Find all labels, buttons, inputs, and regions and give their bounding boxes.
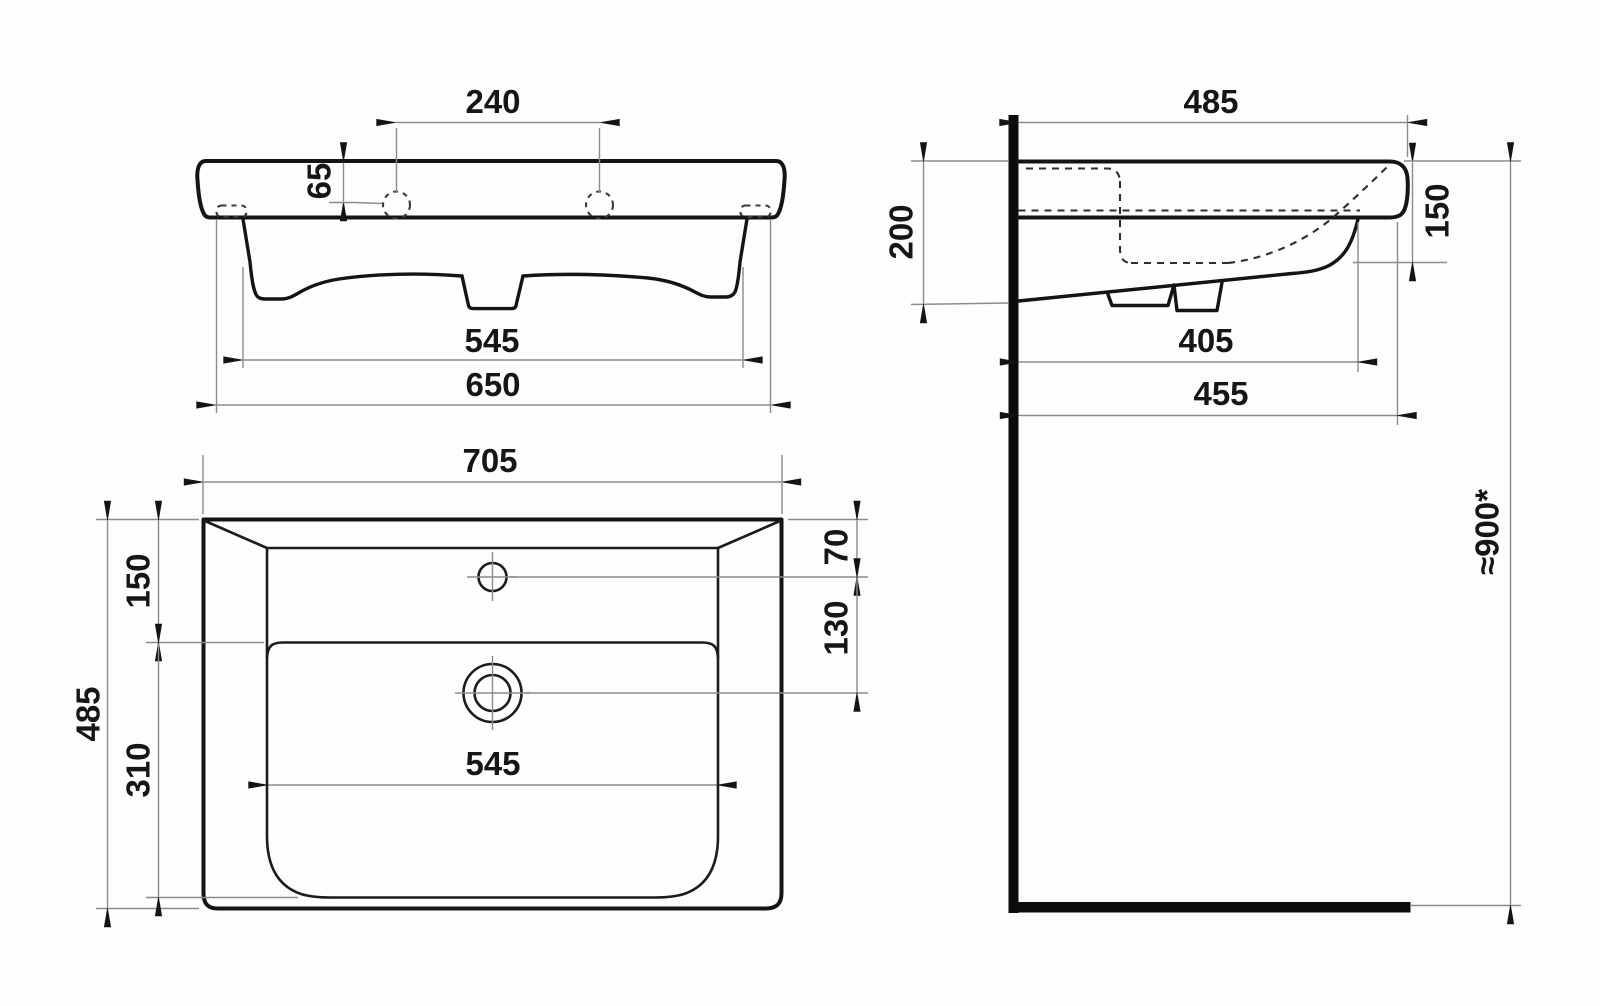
- dim-side-front-edge: 150: [1419, 183, 1456, 238]
- side-rim-profile: [1019, 162, 1408, 218]
- dim-front-fixing-spacing: 650: [465, 366, 520, 403]
- front-view: 240 65 545 650: [197, 83, 784, 413]
- side-bowl-hidden-front: [1228, 164, 1390, 263]
- dim-plan-depth: 485: [70, 686, 107, 741]
- side-bowl-hidden-back: [1120, 181, 1131, 263]
- front-tap-hole-right: [586, 192, 613, 219]
- dim-front-tap-drop: 65: [301, 163, 338, 200]
- side-view: 485 200 150 405 455 ≈900*: [883, 83, 1522, 913]
- dim-side-install-height: ≈900*: [1469, 489, 1506, 575]
- front-drain-spigot: [462, 276, 523, 309]
- dim-plan-tap-to-drain: 130: [818, 600, 855, 655]
- dim-plan-tap-from-back: 70: [818, 529, 855, 566]
- dim-plan-bowl-width: 545: [465, 745, 520, 782]
- dim-side-depth: 485: [1183, 83, 1238, 120]
- technical-drawing-page: 240 65 545 650: [0, 0, 1600, 1006]
- dim-side-wall-height: 200: [883, 204, 920, 259]
- front-tap-hole-left: [383, 192, 410, 219]
- floor-section: [1009, 902, 1411, 913]
- front-fixing-pad-left: [217, 206, 247, 218]
- technical-drawing-canvas: 240 65 545 650: [0, 0, 1600, 1006]
- plan-deck-chamfer-right: [718, 521, 780, 548]
- side-trap-spigot: [1174, 283, 1222, 311]
- side-underside-profile: [1019, 219, 1359, 301]
- plan-deck-chamfer-left: [205, 521, 267, 548]
- side-bowl-hidden-top: [1026, 169, 1120, 182]
- dim-plan-deck-to-bowl: 150: [120, 553, 157, 608]
- wall-section: [1009, 115, 1019, 913]
- front-rim-outline: [197, 161, 784, 218]
- dim-plan-bowl-length: 310: [120, 742, 157, 797]
- front-fixing-pad-right: [741, 206, 771, 218]
- dim-plan-width: 705: [462, 442, 517, 479]
- dim-front-body-width: 545: [464, 322, 519, 359]
- plan-bowl-shelf-line: [267, 643, 718, 659]
- dim-front-tap-spacing: 240: [465, 83, 520, 120]
- dim-side-trap-depth: 405: [1178, 322, 1233, 359]
- front-body-left: [243, 219, 462, 299]
- front-body-right: [523, 219, 747, 297]
- dim-side-underside-depth: 455: [1193, 375, 1248, 412]
- plan-view: 705 485 150 310 70 130 545: [70, 442, 869, 909]
